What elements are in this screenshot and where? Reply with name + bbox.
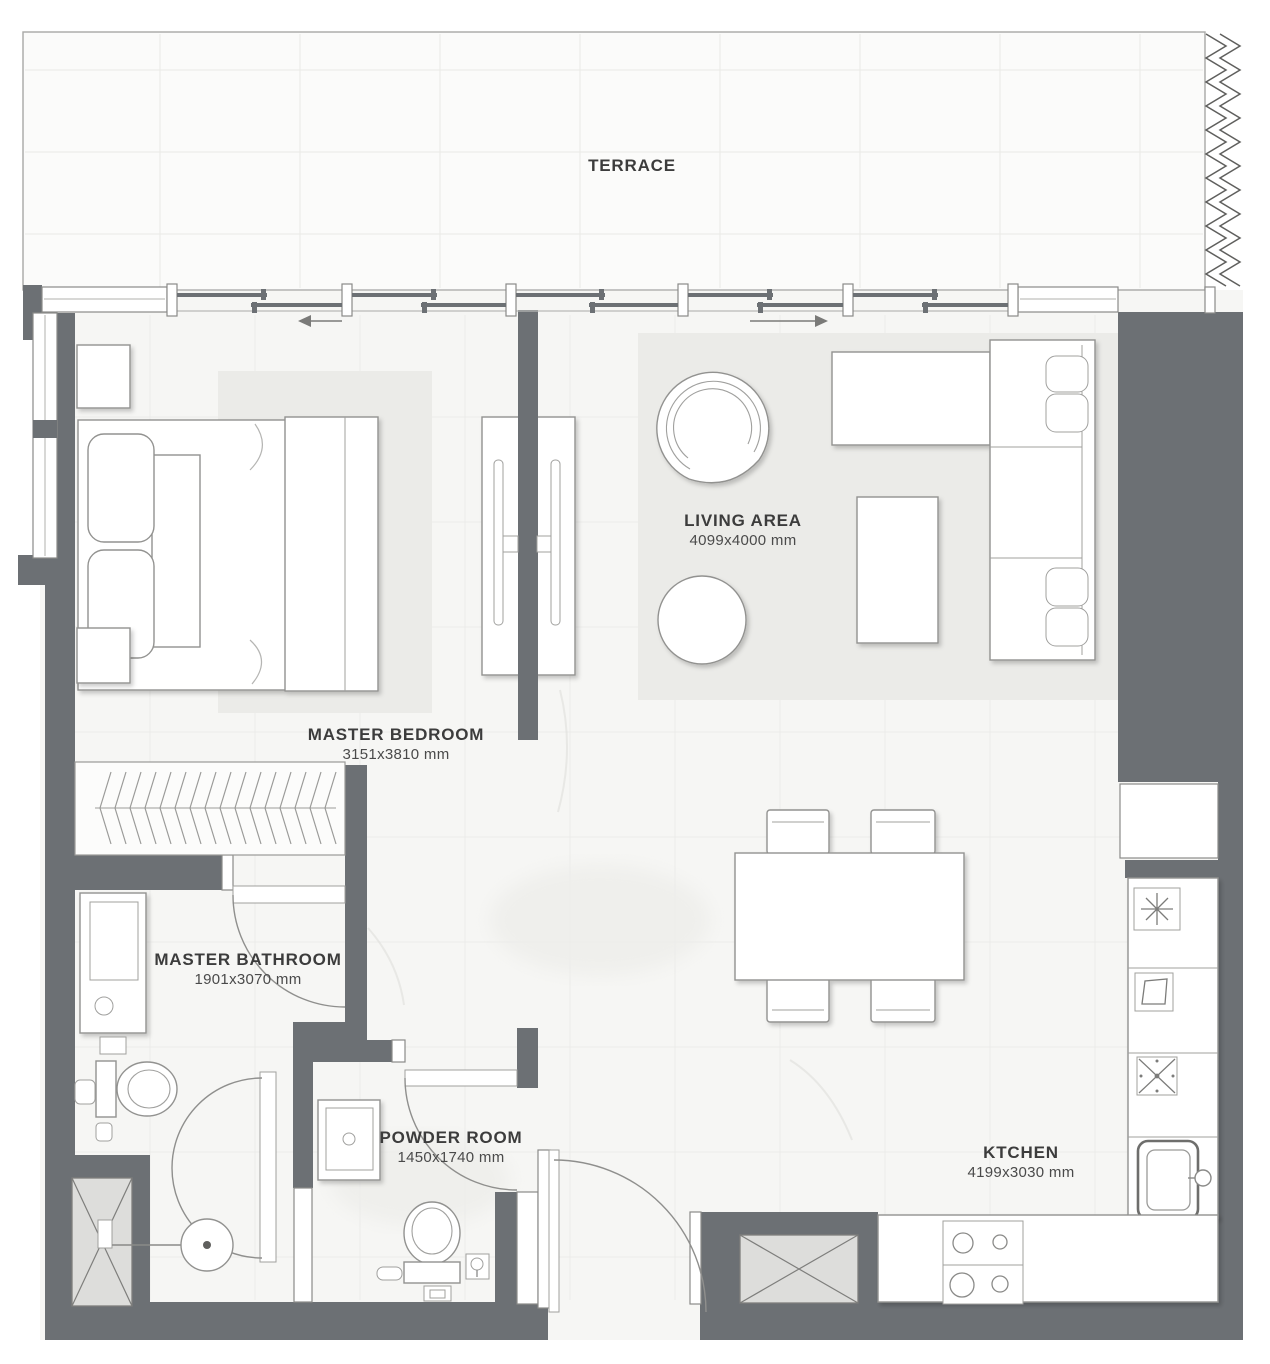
master-bathroom-dims: 1901x3070 mm [195,971,302,988]
floor-plan-svg: TERRACE LIVING AREA 4099x4000 mm MASTER … [0,0,1270,1364]
master-bedroom-dims: 3151x3810 mm [343,746,450,763]
powder-room-dims: 1450x1740 mm [398,1149,505,1166]
dining-table [735,853,964,980]
kitchen-dims: 4199x3030 mm [968,1164,1075,1181]
master-bedroom-label: MASTER BEDROOM [308,725,484,744]
oven-icon [1135,973,1173,1011]
living-area-label: LIVING AREA [684,511,802,530]
nightstand [77,345,130,408]
kitchen-label: KTCHEN [983,1143,1059,1162]
faucet-icon [1195,1170,1211,1186]
freezer-icon [1134,888,1180,930]
master-bathroom-label: MASTER BATHROOM [154,950,341,969]
terrace-label: TERRACE [588,156,676,175]
powder-room-label: POWDER ROOM [380,1128,523,1147]
nightstand [77,628,130,683]
bedroom-window [33,313,57,558]
sofa-cushion [1046,356,1088,392]
hob-icon [1137,1057,1177,1095]
wardrobe [75,762,345,855]
living-area-dims: 4099x4000 mm [690,532,797,549]
kitchen-side-window [1120,784,1218,858]
dining-chair [871,810,935,854]
armchair [657,372,769,482]
coffee-table [857,497,938,643]
right-core-wall [1118,312,1243,782]
sofa-cushion [1046,394,1088,432]
vanity-sink [80,893,146,1033]
sofa-cushion [1046,608,1088,646]
powder-basin [318,1100,380,1180]
bedroom-living-wall [518,310,538,740]
floor-plan-page: TERRACE LIVING AREA 4099x4000 mm MASTER … [0,0,1270,1364]
pillow [88,434,154,542]
sofa-cushion [1046,568,1088,606]
kitchen-shaft-icon [740,1235,858,1303]
dining-chair [767,810,829,854]
dining-chair [871,978,935,1022]
kitchen-counter-bottom [878,1215,1218,1302]
post-under-break-line [1205,287,1215,313]
dining-chair [767,978,829,1022]
cooktop-icon [943,1221,1023,1304]
floor-drain-icon [466,1254,489,1279]
pouf [658,576,746,664]
